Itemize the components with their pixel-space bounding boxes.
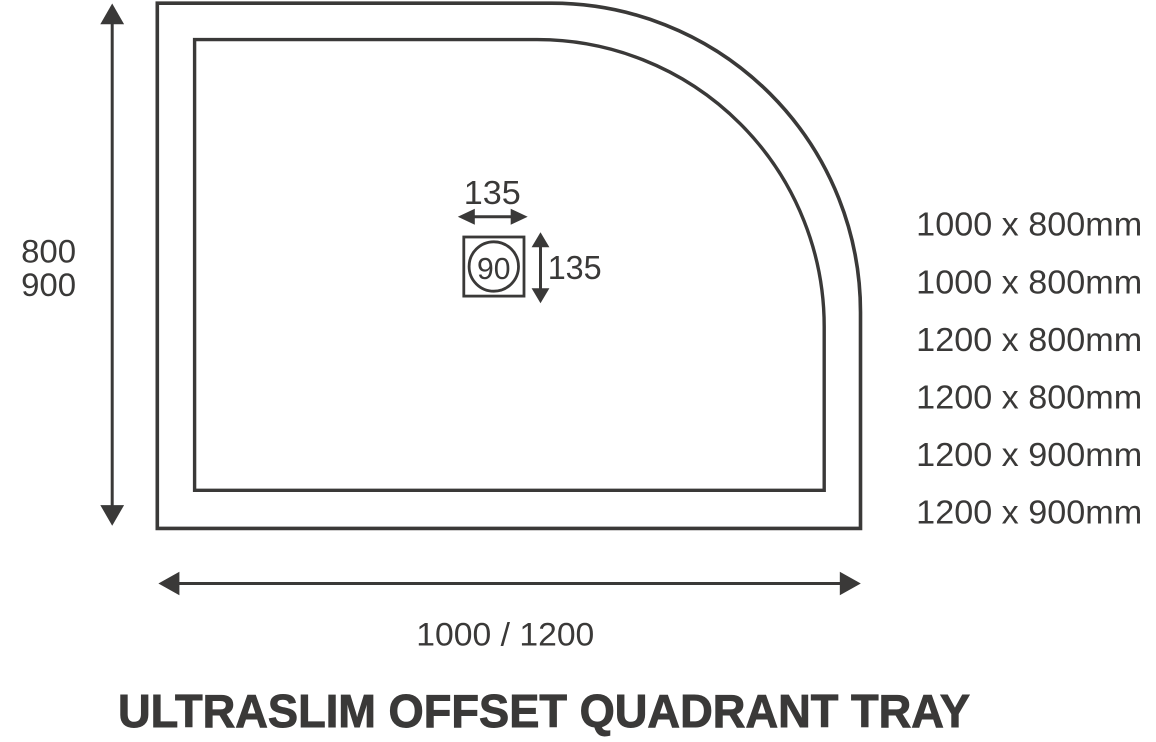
svg-text:1200 x 800mm: 1200 x 800mm: [916, 321, 1142, 358]
svg-text:1200 x 900mm: 1200 x 900mm: [916, 436, 1142, 473]
svg-text:1000 x 800mm: 1000 x 800mm: [916, 263, 1142, 300]
svg-text:900: 900: [21, 267, 76, 303]
svg-text:90: 90: [477, 251, 511, 286]
svg-text:1200 x 900mm: 1200 x 900mm: [916, 494, 1142, 531]
svg-text:135: 135: [548, 249, 602, 286]
svg-text:800: 800: [21, 233, 76, 269]
svg-text:ULTRASLIM OFFSET QUADRANT TRAY: ULTRASLIM OFFSET QUADRANT TRAY: [118, 685, 970, 737]
svg-text:135: 135: [464, 174, 521, 211]
svg-text:1000 / 1200: 1000 / 1200: [416, 616, 594, 652]
svg-text:1200 x 800mm: 1200 x 800mm: [916, 379, 1142, 416]
svg-text:1000 x 800mm: 1000 x 800mm: [916, 206, 1142, 243]
